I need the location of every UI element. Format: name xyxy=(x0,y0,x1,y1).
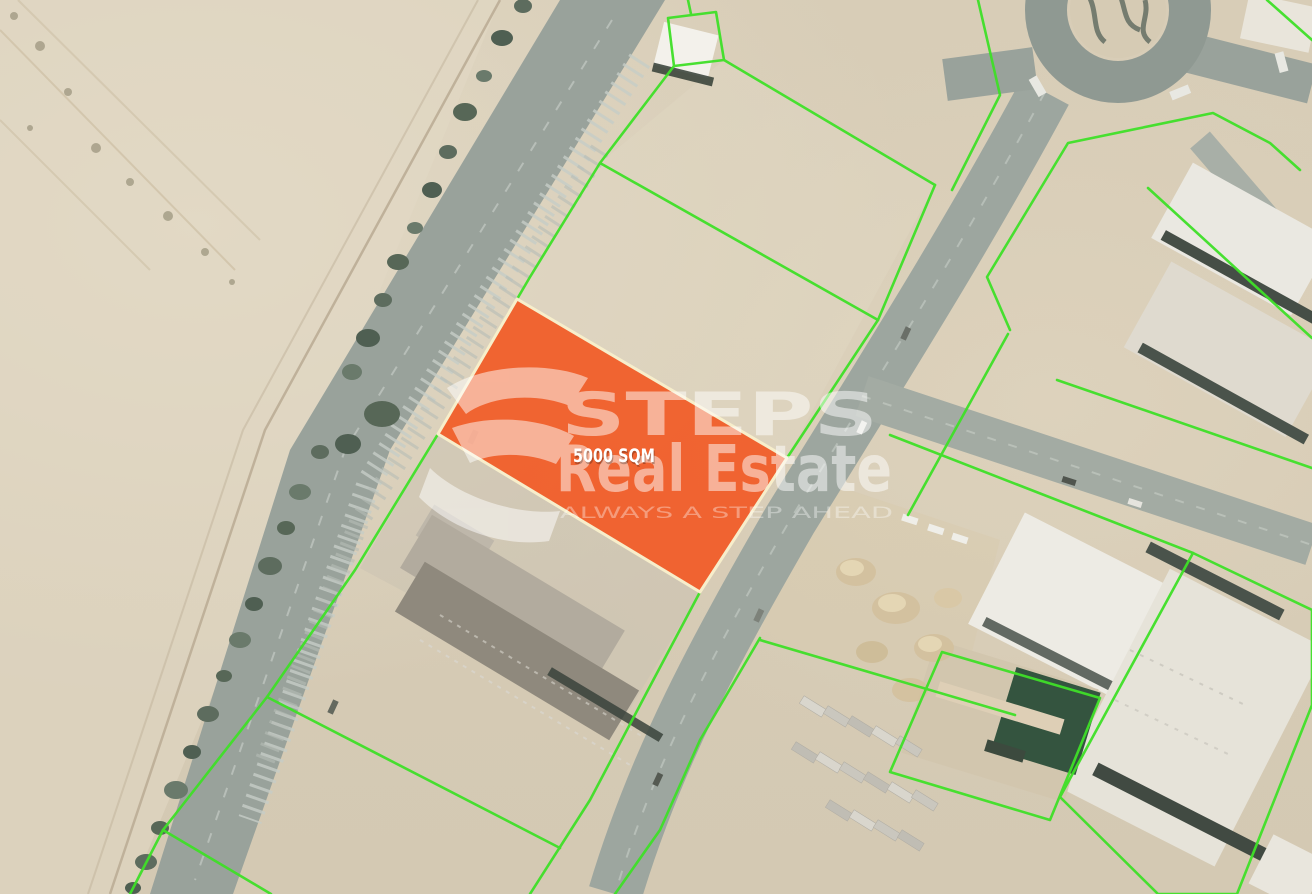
satellite-map: STEPS Real Estate ALWAYS A STEP AHEAD 50… xyxy=(0,0,1312,894)
watermark-tagline: ALWAYS A STEP AHEAD xyxy=(560,503,893,522)
watermark: STEPS Real Estate ALWAYS A STEP AHEAD xyxy=(419,367,893,542)
plot-area-label-text: 5000 SQM xyxy=(573,445,655,467)
plot-area-label: 5000 SQM 5000 SQM xyxy=(573,445,656,469)
map-canvas: STEPS Real Estate ALWAYS A STEP AHEAD 50… xyxy=(0,0,1312,894)
